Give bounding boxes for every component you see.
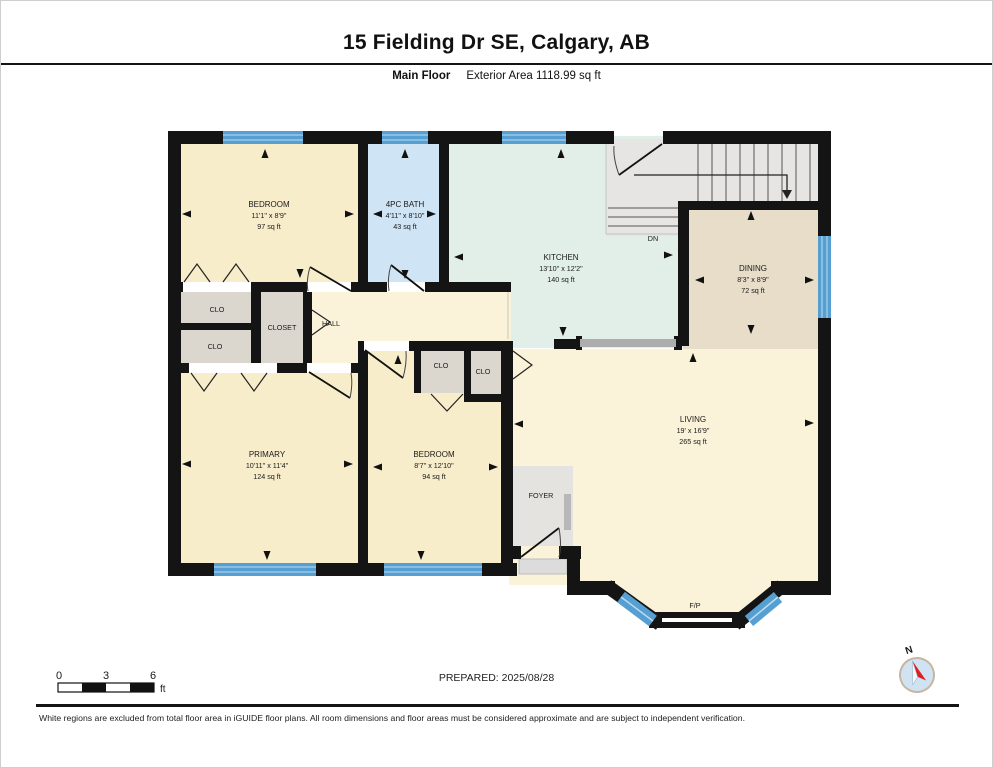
prepared-date: PREPARED: 2025/08/28	[1, 672, 992, 684]
room-label-dining: DINING 8'3" x 8'9" 72 sq ft	[737, 264, 769, 295]
svg-text:BEDROOM: BEDROOM	[248, 200, 290, 209]
page-title: 15 Fielding Dr SE, Calgary, AB	[1, 31, 992, 55]
svg-text:94 sq ft: 94 sq ft	[422, 472, 446, 481]
clo-label-3: CLO	[434, 361, 449, 370]
svg-text:BEDROOM: BEDROOM	[413, 450, 455, 459]
svg-text:265 sq ft: 265 sq ft	[679, 437, 707, 446]
svg-text:8'7" x 12'10": 8'7" x 12'10"	[414, 461, 454, 470]
svg-text:4'11" x 8'10": 4'11" x 8'10"	[386, 211, 425, 220]
scale-unit: ft	[160, 684, 166, 695]
svg-text:43 sq ft: 43 sq ft	[393, 222, 417, 231]
clo-label-2: CLO	[208, 342, 223, 351]
compass-icon: N	[884, 637, 948, 701]
fireplace	[662, 618, 732, 622]
clo-label-1: CLO	[210, 305, 225, 314]
compass-north-label: N	[904, 644, 914, 657]
svg-text:LIVING: LIVING	[680, 415, 706, 424]
room-label-living: LIVING 19' x 16'9" 265 sq ft	[677, 415, 710, 446]
svg-text:19' x 16'9": 19' x 16'9"	[677, 426, 710, 435]
stairs-down-label: DN	[648, 234, 658, 243]
closet-label: CLOSET	[268, 323, 297, 332]
svg-text:13'10" x 12'2": 13'10" x 12'2"	[539, 264, 583, 273]
svg-text:KITCHEN: KITCHEN	[543, 253, 578, 262]
svg-text:124 sq ft: 124 sq ft	[253, 472, 281, 481]
fireplace-label: F/P	[689, 601, 700, 610]
svg-text:97 sq ft: 97 sq ft	[257, 222, 281, 231]
footer-divider	[36, 704, 959, 707]
svg-text:72 sq ft: 72 sq ft	[741, 286, 765, 295]
svg-text:10'11" x 11'4": 10'11" x 11'4"	[246, 461, 289, 470]
floor-label: Main Floor	[392, 70, 450, 82]
floor-plan: BEDROOM 11'1" x 8'9" 97 sq ft 4PC BATH 4…	[151, 119, 851, 649]
clo-label-4: CLO	[476, 367, 491, 376]
title-divider	[1, 63, 993, 65]
floor-plan-page: 15 Fielding Dr SE, Calgary, AB Main Floo…	[0, 0, 993, 768]
half-wall	[580, 339, 676, 347]
svg-text:140 sq ft: 140 sq ft	[547, 275, 575, 284]
exterior-area-label: Exterior Area 1118.99 sq ft	[466, 70, 600, 82]
floor-subtitle: Main FloorExterior Area 1118.99 sq ft	[1, 70, 992, 82]
svg-text:PRIMARY: PRIMARY	[249, 450, 286, 459]
svg-text:11'1" x 8'9": 11'1" x 8'9"	[252, 211, 287, 220]
foyer-label: FOYER	[529, 491, 554, 500]
svg-text:DINING: DINING	[739, 264, 767, 273]
svg-text:4PC BATH: 4PC BATH	[386, 200, 425, 209]
hall-label: HALL	[322, 319, 340, 328]
svg-text:8'3" x 8'9": 8'3" x 8'9"	[737, 275, 769, 284]
disclaimer-text: White regions are excluded from total fl…	[39, 713, 959, 723]
